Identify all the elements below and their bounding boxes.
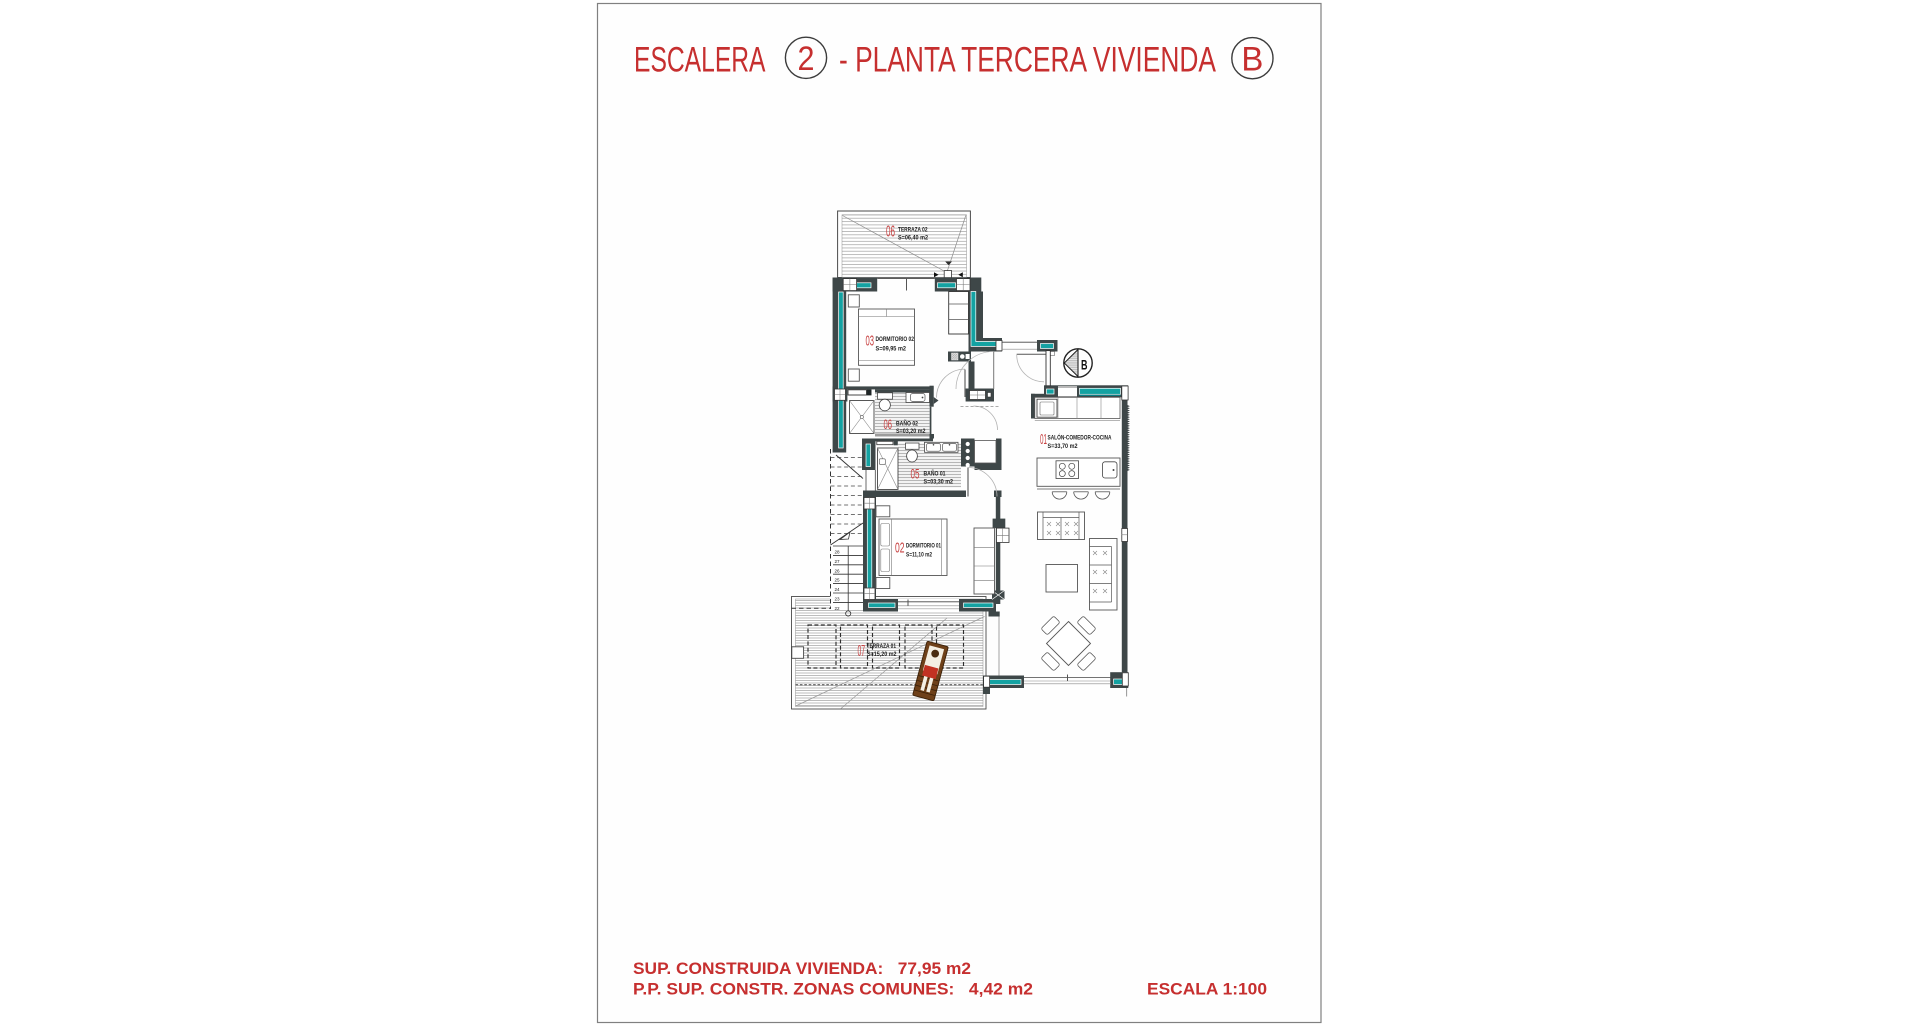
svg-text:B: B xyxy=(1241,41,1263,79)
svg-text:- PLANTA TERCERA VIVIENDA: - PLANTA TERCERA VIVIENDA xyxy=(839,40,1216,80)
svg-text:28: 28 xyxy=(835,550,841,555)
svg-text:07: 07 xyxy=(858,643,866,660)
svg-text:S=33,70 m2: S=33,70 m2 xyxy=(1048,443,1078,450)
svg-text:TERRAZA 02: TERRAZA 02 xyxy=(898,227,928,234)
svg-text:23: 23 xyxy=(835,597,841,602)
svg-text:S=09,95 m2: S=09,95 m2 xyxy=(876,345,907,352)
svg-text:ESCALA 1:100: ESCALA 1:100 xyxy=(1147,981,1267,999)
svg-text:S=15,20 m2: S=15,20 m2 xyxy=(867,651,897,658)
svg-text:2: 2 xyxy=(798,40,815,78)
svg-text:SUP. CONSTRUIDA VIVIENDA: 77: SUP. CONSTRUIDA VIVIENDA: 77,95 m2 xyxy=(633,960,971,978)
svg-text:22: 22 xyxy=(835,606,841,611)
svg-text:S=06,40 m2: S=06,40 m2 xyxy=(898,234,928,241)
svg-text:S=03,30 m2: S=03,30 m2 xyxy=(924,479,954,486)
svg-text:TERRAZA 01: TERRAZA 01 xyxy=(867,643,897,650)
svg-text:05: 05 xyxy=(911,466,920,482)
svg-text:06: 06 xyxy=(886,224,895,241)
svg-text:25: 25 xyxy=(835,578,841,583)
svg-text:DORMITORIO 01: DORMITORIO 01 xyxy=(906,542,941,549)
svg-text:03: 03 xyxy=(866,333,875,350)
svg-text:DORMITORIO 02: DORMITORIO 02 xyxy=(876,336,915,343)
svg-text:S=03,20 m2: S=03,20 m2 xyxy=(896,428,926,435)
svg-text:01: 01 xyxy=(1040,431,1047,448)
svg-text:B: B xyxy=(1081,357,1088,372)
svg-text:SALÓN-COMEDOR-COCINA: SALÓN-COMEDOR-COCINA xyxy=(1048,433,1112,442)
svg-text:BAÑO 02: BAÑO 02 xyxy=(896,418,918,427)
svg-text:02: 02 xyxy=(895,540,905,557)
svg-text:P.P. SUP. CONSTR. ZONAS COMUNE: P.P. SUP. CONSTR. ZONAS COMUNES: 4,42 m2 xyxy=(633,981,1033,999)
svg-text:ESCALERA: ESCALERA xyxy=(634,40,766,80)
svg-text:24: 24 xyxy=(835,587,841,592)
svg-text:27: 27 xyxy=(835,559,841,564)
svg-text:BAÑO 01: BAÑO 01 xyxy=(924,469,946,478)
svg-text:26: 26 xyxy=(835,568,841,573)
svg-text:S=11,10 m2: S=11,10 m2 xyxy=(906,552,932,559)
svg-text:06: 06 xyxy=(884,416,893,432)
